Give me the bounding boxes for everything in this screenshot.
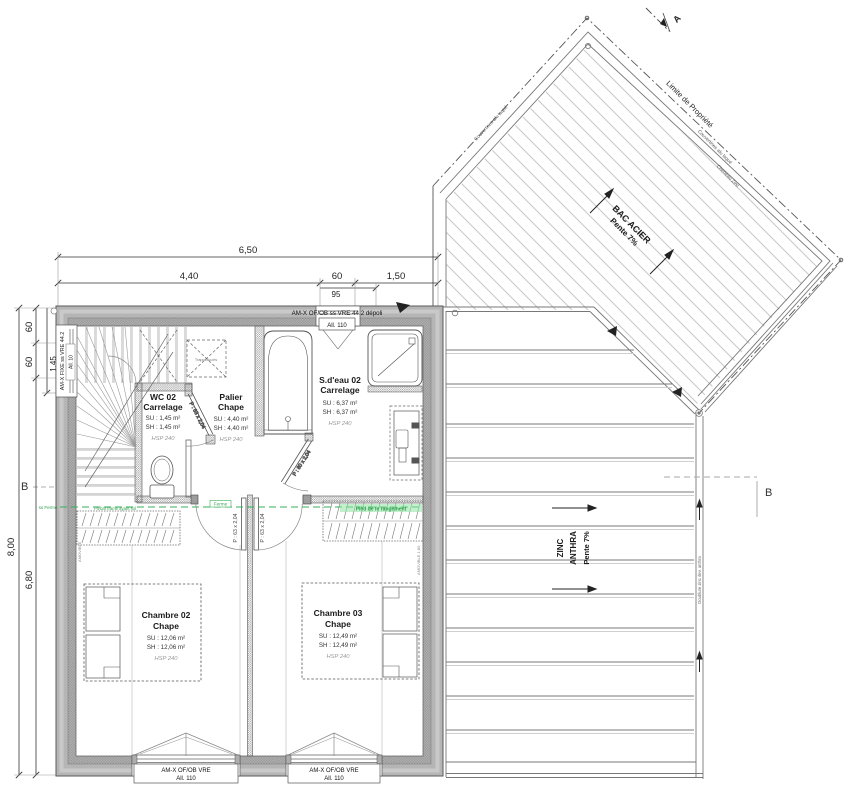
svg-text:Pente 7%: Pente 7%: [582, 531, 591, 565]
svg-text:60: 60: [24, 357, 35, 368]
svg-text:All. 110: All. 110: [176, 776, 196, 782]
svg-text:4,40: 4,40: [180, 271, 199, 282]
svg-text:SU : 12,49 m²: SU : 12,49 m²: [319, 633, 357, 640]
svg-text:AM-X OF/OB VRE: AM-X OF/OB VRE: [309, 768, 358, 774]
svg-text:Ferme: Ferme: [214, 502, 228, 507]
svg-text:Chape: Chape: [218, 402, 244, 412]
svg-text:B: B: [765, 487, 772, 499]
svg-text:AM-X OF/OB ss VRE 44.2 dépoli: AM-X OF/OB ss VRE 44.2 dépoli: [292, 310, 383, 317]
svg-text:Carrelage: Carrelage: [143, 402, 182, 412]
svg-text:Chape: Chape: [153, 621, 179, 631]
svg-text:Pli-bar frame ayant sol: Pli-bar frame ayant sol: [94, 506, 136, 511]
svg-text:AMOVIBLE 1,80: AMOVIBLE 1,80: [416, 545, 421, 575]
svg-text:AM-X FIXE ss VRE 44.2: AM-X FIXE ss VRE 44.2: [60, 332, 66, 390]
svg-text:SU : 6,37 m²: SU : 6,37 m²: [323, 400, 358, 407]
svg-text:8,00: 8,00: [6, 538, 17, 557]
svg-text:60: 60: [24, 322, 35, 333]
svg-text:HSP 240: HSP 240: [329, 421, 353, 427]
svg-text:All. 110: All. 110: [327, 323, 347, 329]
svg-text:Chambre 03: Chambre 03: [314, 608, 363, 618]
svg-text:ss Ferme: ss Ferme: [39, 505, 58, 510]
svg-text:All. 10: All. 10: [69, 355, 75, 369]
svg-text:Carrelage: Carrelage: [320, 385, 359, 395]
svg-text:TrappeAccès: TrappeAccès: [195, 358, 217, 362]
svg-text:S.d'eau 02: S.d'eau 02: [319, 375, 361, 385]
svg-text:SH : 6,37 m²: SH : 6,37 m²: [323, 409, 358, 416]
svg-text:AM-X OF/OB VRE: AM-X OF/OB VRE: [161, 768, 210, 774]
svg-text:HSP 240: HSP 240: [220, 437, 244, 443]
svg-text:SU : 4,40 m²: SU : 4,40 m²: [214, 416, 249, 423]
svg-text:SH : 1,45 m²: SH : 1,45 m²: [146, 424, 181, 431]
svg-text:AMOVIBLE: AMOVIBLE: [77, 541, 82, 562]
svg-text:All. 110: All. 110: [324, 776, 344, 782]
svg-text:95: 95: [332, 290, 341, 299]
svg-text:ZINC: ZINC: [556, 538, 565, 557]
svg-text:B: B: [21, 481, 28, 493]
svg-text:Chambre 02: Chambre 02: [142, 610, 191, 620]
svg-text:SU : 12,06 m²: SU : 12,06 m²: [147, 635, 185, 642]
svg-text:6,80: 6,80: [24, 571, 35, 590]
svg-text:SH : 12,06 m²: SH : 12,06 m²: [147, 644, 185, 651]
svg-text:HSP 240: HSP 240: [155, 656, 179, 662]
svg-text:P : 63 x 2,04: P : 63 x 2,04: [260, 513, 266, 542]
svg-text:1,50: 1,50: [387, 271, 406, 282]
svg-text:60: 60: [332, 271, 343, 282]
svg-text:Pied de fe rangement: Pied de fe rangement: [356, 507, 407, 513]
svg-text:6,50: 6,50: [239, 245, 258, 256]
svg-text:Palier: Palier: [219, 392, 243, 402]
svg-text:SH : 12,49 m²: SH : 12,49 m²: [319, 642, 357, 649]
svg-text:Doublure zinc dev. anthra: Doublure zinc dev. anthra: [697, 556, 702, 604]
svg-text:HSP 240: HSP 240: [327, 654, 351, 660]
svg-text:SH : 4,40 m²: SH : 4,40 m²: [214, 425, 249, 432]
svg-text:P : 63 x 2,04: P : 63 x 2,04: [233, 513, 239, 542]
svg-text:WC 02: WC 02: [150, 392, 176, 402]
svg-text:HSP 240: HSP 240: [152, 436, 176, 442]
svg-text:Chape: Chape: [325, 619, 351, 629]
svg-text:ANTHRA: ANTHRA: [569, 531, 578, 565]
svg-text:SU : 1,45 m²: SU : 1,45 m²: [146, 415, 181, 422]
